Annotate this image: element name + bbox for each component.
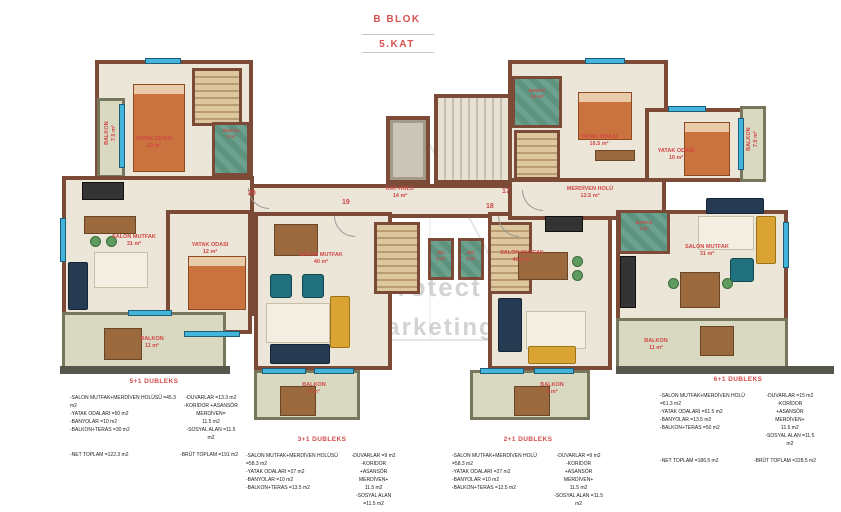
terrace-edge-wall-left (60, 366, 230, 374)
kitchen-island-icon (84, 216, 136, 234)
sofa-icon (270, 344, 330, 364)
room-label-living-405: SALON MUTFAK 40.5 m² (486, 250, 558, 264)
spec-block-2plus1: 2+1 DUBLEKS -SALON MUTFAK+MERDİVEN HOLÜ … (452, 436, 604, 512)
spec-header: 6+1 DUBLEKS (660, 376, 816, 383)
unit-number-20: 20 (248, 190, 256, 197)
title-divider (362, 34, 434, 35)
armchair-icon (270, 274, 292, 298)
page-title-floor: 5.KAT (337, 39, 457, 50)
window (145, 58, 181, 64)
spec-gross-total: -BRÜT TOPLAM =228.5 m2 (754, 458, 816, 464)
rug-icon (526, 311, 586, 349)
floor-plan-sheet: B BLOK 5.KAT Protect Marketing (0, 0, 841, 512)
sofa-icon (498, 298, 522, 352)
window (60, 218, 66, 262)
spec-block-3plus1: 3+1 DUBLEKS -SALON MUTFAK+MERDİVEN HOLÜS… (246, 436, 398, 512)
window (738, 118, 744, 170)
room-label-stair-hall-right: MERDİVEN HOLÜ 12.5 m² (548, 186, 632, 200)
chair-icon (572, 270, 583, 281)
sofa-icon (330, 296, 350, 348)
room-label-wc-right: WC 2 m² (458, 250, 484, 262)
sofa-icon (706, 198, 764, 214)
dining-table-icon (680, 272, 720, 308)
room-label-bathroom-35-right: BANYO 3.5 m² (512, 88, 562, 100)
sofa-icon (756, 216, 776, 264)
spec-header: 3+1 DUBLEKS (246, 436, 398, 443)
room-label-balcony-75-left: BALKON 7.5 m² (104, 111, 118, 155)
room-label-balcony-75-right: BALKON 7.5 m² (746, 117, 760, 161)
spec-block-6plus1-right: 6+1 DUBLEKS -SALON MUTFAK+MERDİVEN HOLÜ … (660, 376, 816, 464)
bed-icon (133, 84, 185, 172)
sofa-icon (528, 346, 576, 364)
bed-icon (578, 92, 632, 140)
sofa-icon (68, 262, 88, 310)
room-label-floor-hall: KAT HOLÜ 14 m² (368, 186, 432, 200)
stairs-main-core (434, 94, 518, 184)
balcony-table-icon (700, 326, 734, 356)
spec-header: 5+1 DUBLEKS (70, 378, 238, 385)
room-bathroom-35-right (512, 76, 562, 128)
spec-net-total: -NET TOPLAM =122.3 m2 (70, 452, 129, 458)
dresser-icon (595, 150, 635, 161)
unit-number-19: 19 (342, 199, 350, 206)
room-label-bedroom-165-right: YATAK ODASI 16.5 m² (566, 134, 632, 148)
stairs-duplex-left (192, 68, 242, 126)
bed-icon (188, 256, 246, 310)
title-divider (362, 52, 434, 53)
unit-number-17: 17 (502, 188, 510, 195)
spec-left-column: -SALON MUTFAK+MERDİVEN HOLÜSÜ =58.3 m2 -… (246, 452, 343, 508)
rug-icon (94, 252, 148, 288)
spec-left-column: -SALON MUTFAK+MERDİVEN HOLÜSÜ =45.3 m2 -… (70, 394, 178, 442)
window (480, 368, 524, 374)
page-title-block: B BLOK (337, 14, 457, 25)
rug-icon (266, 303, 330, 343)
stairs-duplex-19 (374, 222, 420, 294)
chair-icon (668, 278, 679, 289)
kitchen-counter-icon (82, 182, 124, 200)
room-label-living-40: SALON MUTFAK 40 m² (286, 252, 356, 266)
room-label-living-31-left: SALON MUTFAK 31 m² (98, 234, 170, 248)
room-label-balcony-11-left: BALKON 11 m² (126, 336, 178, 350)
spec-left-column: -SALON MUTFAK+MERDİVEN HOLÜ =58.3 m2 -YA… (452, 452, 547, 508)
window (783, 222, 789, 268)
window (314, 368, 354, 374)
room-label-balcony-9-right: BALKON 9 m² (530, 382, 574, 396)
room-bathroom-4-right (618, 210, 670, 254)
window (585, 58, 625, 64)
room-label-balcony-11-right: BALKON 11 m² (630, 338, 682, 352)
chair-icon (722, 278, 733, 289)
spec-right-column: -DUVARLAR =15 m2 -KORİDOR +ASANSÖR MERDİ… (764, 392, 816, 448)
spec-net-total: -NET TOPLAM =186.5 m2 (660, 458, 719, 464)
spec-left-column: -SALON MUTFAK+MERDİVEN HOLÜ =61.3 m2 -YA… (660, 392, 758, 448)
room-label-bedroom-10-right: YATAK ODASI 10 m² (644, 148, 708, 162)
kitchen-counter-icon (620, 256, 636, 308)
window (262, 368, 306, 374)
spec-gross-total: -BRÜT TOPLAM =191 m2 (180, 452, 238, 458)
spec-right-column: -DUVARLAR =9 m2 -KORİDOR +ASANSÖR MERDİV… (349, 452, 398, 508)
room-label-wc-left: WC 2 m² (428, 250, 454, 262)
room-label-bathroom-3-left: BANYO 3 m² (210, 128, 252, 140)
spec-right-column: -DUVARLAR =9 m2 -KORİDOR +ASANSÖR MERDİV… (553, 452, 604, 508)
window (128, 310, 172, 316)
stairs-duplex-right (514, 130, 560, 180)
window (668, 106, 706, 112)
spec-header: 2+1 DUBLEKS (452, 436, 604, 443)
spec-right-column: -DUVARLAR =13.3 m2 -KORİDOR +ASANSÖR MER… (184, 394, 238, 442)
room-label-bathroom-4-right: BANYO 4 m² (620, 220, 668, 232)
room-label-living-31-right: SALON MUTFAK 31 m² (672, 244, 742, 258)
room-label-bedroom-12-left: YATAK ODASI 12 m² (178, 242, 242, 256)
room-label-balcony-9-left: BALKON 9 m² (292, 382, 336, 396)
window (534, 368, 574, 374)
kitchen-counter-icon (545, 216, 583, 232)
elevator-shaft (386, 116, 430, 184)
unit-number-18: 18 (486, 203, 494, 210)
armchair-icon (730, 258, 754, 282)
armchair-icon (302, 274, 324, 298)
room-label-bedroom-10-left: YATAK ODASI 10 m² (122, 136, 186, 150)
window (184, 331, 240, 337)
spec-block-5plus1-left: 5+1 DUBLEKS -SALON MUTFAK+MERDİVEN HOLÜS… (70, 378, 238, 458)
chair-icon (572, 256, 583, 267)
terrace-edge-wall-right (616, 366, 834, 374)
